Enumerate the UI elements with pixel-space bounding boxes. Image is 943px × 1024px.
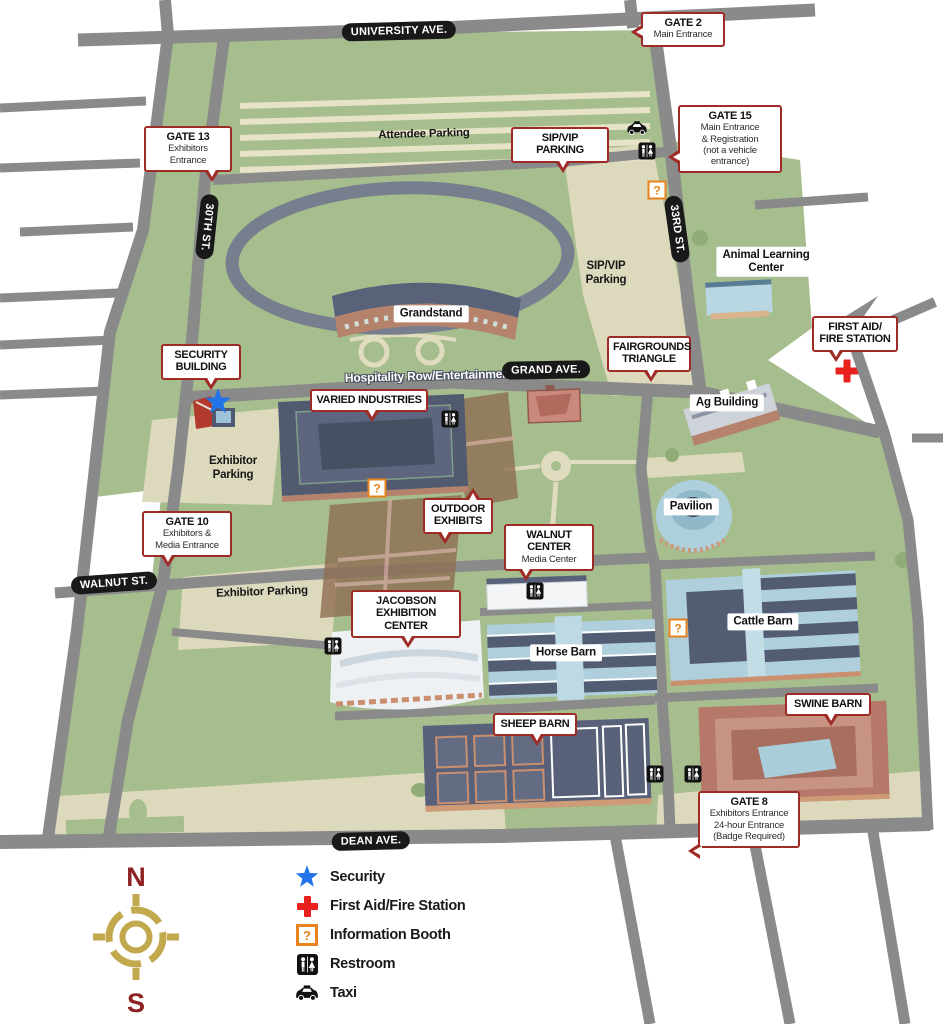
callout-title: VARIED INDUSTRIES <box>316 394 422 406</box>
callout-title: GATE 13 <box>150 131 226 143</box>
callout-subtitle: Exhibitors & Media Entrance <box>148 528 226 550</box>
information-booth-icon: ? <box>648 181 667 200</box>
street-label-dean-ave: DEAN AVE. <box>332 831 411 851</box>
information-booth-icon: ? <box>368 479 387 498</box>
compass-rose-graphic <box>91 892 181 982</box>
building-label-pavilion: Pavilion <box>664 498 719 515</box>
legend-label: Information Booth <box>330 927 451 943</box>
area-label-exhibitor-parking-west: Exhibitor Parking <box>209 455 257 483</box>
callout-swine-barn: SWINE BARN <box>785 693 871 716</box>
building-label-ag-building: Ag Building <box>690 394 764 411</box>
restroom-icon <box>292 954 322 975</box>
callout-gate-2: GATE 2 Main Entrance <box>641 12 725 47</box>
callout-title: SECURITY BUILDING <box>167 349 235 374</box>
callout-title: FIRST AID/ FIRE STATION <box>818 321 892 346</box>
callout-subtitle: Exhibitors Entrance <box>150 143 226 165</box>
callout-gate-13: GATE 13 Exhibitors Entrance <box>144 126 232 172</box>
building-label-cattle-barn: Cattle Barn <box>727 613 798 630</box>
callout-sheep-barn: SHEEP BARN <box>493 713 577 736</box>
callout-varied-industries: VARIED INDUSTRIES <box>310 389 428 412</box>
taxi-icon <box>626 121 649 135</box>
callout-security-building: SECURITY BUILDING <box>161 344 241 380</box>
callout-gate-8: GATE 8 Exhibitors Entrance 24-hour Entra… <box>698 791 800 848</box>
callout-sip-vip-parking: SIP/VIP PARKING <box>511 127 609 163</box>
street-label-grand-ave: GRAND AVE. <box>502 360 590 380</box>
area-label-attendee-parking: Attendee Parking <box>378 127 470 143</box>
callout-gate-10: GATE 10 Exhibitors & Media Entrance <box>142 511 232 557</box>
callout-title: JACOBSON EXHIBITION CENTER <box>357 595 455 632</box>
security-star-icon <box>203 387 233 417</box>
callout-subtitle: Main Entrance <box>647 29 719 40</box>
callout-title: SWINE BARN <box>791 698 865 710</box>
legend-item-restroom: Restroom <box>292 953 465 975</box>
legend-label: First Aid/Fire Station <box>330 898 465 914</box>
area-label-sip-vip-parking: SIP/VIP Parking <box>586 260 627 288</box>
callout-title: SIP/VIP PARKING <box>517 132 603 157</box>
building-label-horse-barn: Horse Barn <box>530 644 602 661</box>
legend-label: Security <box>330 869 385 885</box>
callout-title: WALNUT CENTER <box>510 529 588 554</box>
callout-title: OUTDOOR EXHIBITS <box>429 503 487 528</box>
compass-north-label: N <box>126 862 146 893</box>
callout-title: FAIRGROUNDS TRIANGLE <box>613 341 685 366</box>
legend-item-taxi: Taxi <box>292 982 465 1004</box>
restroom-icon <box>325 638 342 655</box>
callout-title: GATE 15 <box>684 110 776 122</box>
callout-title: GATE 10 <box>148 516 226 528</box>
taxi-icon <box>292 985 322 1001</box>
legend-label: Restroom <box>330 956 395 972</box>
legend-item-security: Security <box>292 866 465 888</box>
callout-title: SHEEP BARN <box>499 718 571 730</box>
restroom-icon <box>685 766 702 783</box>
street-label-university-ave: UNIVERSITY AVE. <box>342 21 457 42</box>
callout-fairgrounds-triangle: FAIRGROUNDS TRIANGLE <box>607 336 691 372</box>
callout-title: GATE 2 <box>647 17 719 29</box>
information-booth-icon: ? <box>292 924 322 946</box>
callout-subtitle: Main Entrance & Registration (not a vehi… <box>684 122 776 167</box>
callout-jacobson-exhibition-center: JACOBSON EXHIBITION CENTER <box>351 590 461 638</box>
legend-label: Taxi <box>330 985 357 1001</box>
map-legend: Security First Aid/Fire Station ? Inform… <box>292 866 465 1011</box>
callout-title: GATE 8 <box>704 796 794 808</box>
building-label-animal-learning-center: Animal Learning Center <box>716 247 815 277</box>
legend-item-first-aid: First Aid/Fire Station <box>292 895 465 917</box>
restroom-icon <box>647 766 664 783</box>
callout-subtitle: Exhibitors Entrance 24-hour Entrance (Ba… <box>704 808 794 842</box>
restroom-icon <box>442 411 459 428</box>
fairgrounds-map: UNIVERSITY AVE. 30TH ST. 33RD ST. GRAND … <box>0 0 943 1024</box>
security-star-icon <box>292 864 322 890</box>
restroom-icon <box>527 583 544 600</box>
building-label-grandstand: Grandstand <box>394 305 469 322</box>
information-booth-icon: ? <box>669 619 688 638</box>
first-aid-cross-icon <box>292 896 322 917</box>
callout-walnut-center: WALNUT CENTER Media Center <box>504 524 594 571</box>
callout-gate-15: GATE 15 Main Entrance & Registration (no… <box>678 105 782 173</box>
callout-first-aid-fire-station: FIRST AID/ FIRE STATION <box>812 316 898 352</box>
restroom-icon <box>639 143 656 160</box>
compass-south-label: S <box>127 988 145 1019</box>
compass-rose: N S <box>88 862 184 1022</box>
callout-subtitle: Media Center <box>510 554 588 565</box>
legend-item-information-booth: ? Information Booth <box>292 924 465 946</box>
callout-outdoor-exhibits: OUTDOOR EXHIBITS <box>423 498 493 534</box>
